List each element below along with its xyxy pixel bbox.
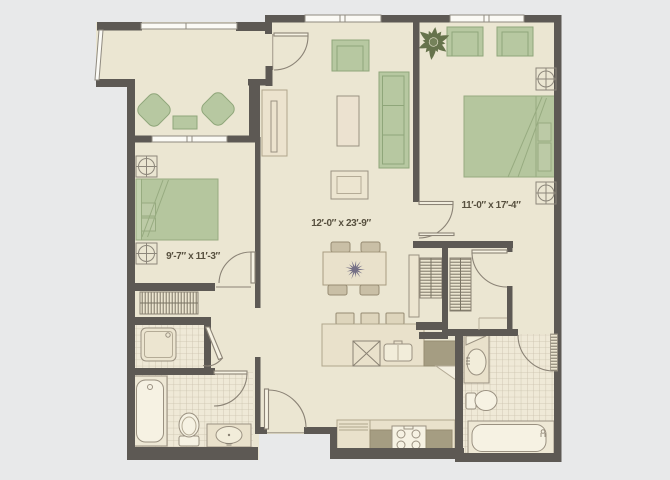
svg-text:11′-0″ x 17′-4″: 11′-0″ x 17′-4″ <box>462 200 522 211</box>
svg-text:12′-0″ x 23′-9″: 12′-0″ x 23′-9″ <box>311 218 371 229</box>
svg-text:9′-7″ x 11′-3″: 9′-7″ x 11′-3″ <box>166 251 220 262</box>
